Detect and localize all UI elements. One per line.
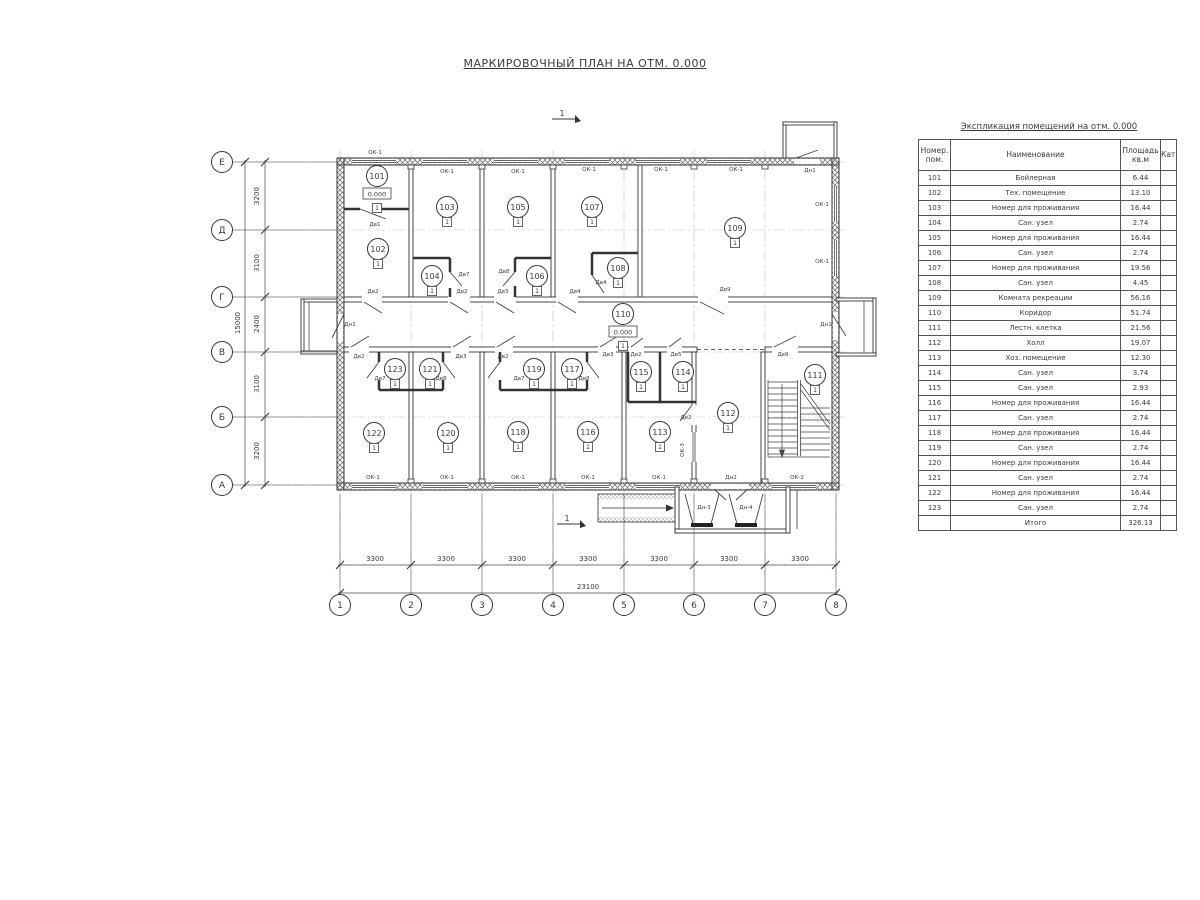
cell-room-number: 121 bbox=[919, 471, 951, 486]
cell-room-name: Коридор bbox=[951, 306, 1121, 321]
cell-room-number: 102 bbox=[919, 186, 951, 201]
table-row: 115Сан. узел2.93 bbox=[919, 381, 1177, 396]
cell-room-name: Номер для проживания bbox=[951, 426, 1121, 441]
svg-text:1: 1 bbox=[445, 219, 449, 226]
cell-room-number: 122 bbox=[919, 486, 951, 501]
window-label-ОК-1: ОК-1 bbox=[654, 167, 668, 173]
window-label-ОК-1: ОК-1 bbox=[366, 475, 380, 481]
room-marker-107: 1071 bbox=[582, 197, 603, 227]
svg-text:1: 1 bbox=[639, 384, 643, 391]
table-row: 117Сан. узел2.74 bbox=[919, 411, 1177, 426]
window-label-ОК-1: ОК-1 bbox=[440, 475, 454, 481]
table-row: 114Сан. узел3.74 bbox=[919, 366, 1177, 381]
svg-text:1: 1 bbox=[564, 514, 569, 523]
room-marker-109: 1091 bbox=[725, 218, 746, 248]
door-label-Дн1: Дн1 bbox=[820, 322, 831, 328]
cell-room-number: 106 bbox=[919, 246, 951, 261]
room-marker-108: 1081 bbox=[608, 258, 629, 288]
table-row: 103Номер для проживания16.44 bbox=[919, 201, 1177, 216]
room-marker-106: 1061 bbox=[527, 266, 548, 296]
svg-text:2400: 2400 bbox=[253, 315, 261, 333]
svg-text:1: 1 bbox=[532, 381, 536, 388]
cell-room-cat bbox=[1161, 486, 1177, 501]
table-header-row: Номер.пом. Наименование Площадькв.м Кат. bbox=[919, 140, 1177, 171]
cell-room-number: 116 bbox=[919, 396, 951, 411]
room-marker-101: 1010.0001 bbox=[363, 166, 391, 213]
cell-room-cat bbox=[1161, 321, 1177, 336]
room-marker-123: 1231 bbox=[385, 359, 406, 389]
cell-room-area: 6.44 bbox=[1121, 171, 1161, 186]
room-marker-120: 1201 bbox=[438, 423, 459, 453]
cell-room-area: 19.07 bbox=[1121, 336, 1161, 351]
cell-room-area: 2.74 bbox=[1121, 216, 1161, 231]
cell-room-cat bbox=[1161, 366, 1177, 381]
svg-text:113: 113 bbox=[652, 428, 667, 437]
cell-room-name: Сан. узел bbox=[951, 216, 1121, 231]
svg-text:103: 103 bbox=[439, 203, 454, 212]
cell-room-cat bbox=[1161, 291, 1177, 306]
svg-text:119: 119 bbox=[526, 365, 541, 374]
cell-room-number: 117 bbox=[919, 411, 951, 426]
room-marker-113: 1131 bbox=[650, 422, 671, 452]
svg-text:1: 1 bbox=[375, 205, 379, 212]
window-label-ОК-1: ОК-1 bbox=[652, 475, 666, 481]
cell-room-name: Номер для проживания bbox=[951, 201, 1121, 216]
svg-text:104: 104 bbox=[424, 272, 439, 281]
door-label-Дн-4: Дн-4 bbox=[739, 505, 753, 511]
svg-text:0.000: 0.000 bbox=[614, 328, 633, 336]
cell-room-name: Сан. узел bbox=[951, 366, 1121, 381]
cell-room-name: Сан. узел bbox=[951, 471, 1121, 486]
table-row: 109Комната рекреации56.16 bbox=[919, 291, 1177, 306]
window-label-ОК-1: ОК-1 bbox=[729, 167, 743, 173]
cell-room-name: Комната рекреации bbox=[951, 291, 1121, 306]
svg-text:5: 5 bbox=[621, 601, 627, 611]
section-marks: 11 bbox=[552, 109, 586, 528]
col-header-number: Номер.пом. bbox=[919, 140, 951, 171]
svg-text:1: 1 bbox=[516, 219, 520, 226]
cell-room-number: 109 bbox=[919, 291, 951, 306]
svg-text:123: 123 bbox=[387, 365, 402, 374]
window-label-ОК-1: ОК-1 bbox=[582, 167, 596, 173]
room-marker-115: 1151 bbox=[631, 362, 652, 392]
cell-room-cat bbox=[1161, 306, 1177, 321]
door-label-Дв3: Дв3 bbox=[455, 354, 467, 360]
cell-room-area: 16.44 bbox=[1121, 426, 1161, 441]
svg-text:1: 1 bbox=[726, 425, 730, 432]
total-value: 326.13 bbox=[1121, 516, 1161, 531]
cell-room-number: 104 bbox=[919, 216, 951, 231]
cell-room-name: Номер для проживания bbox=[951, 486, 1121, 501]
table-row: 118Номер для проживания16.44 bbox=[919, 426, 1177, 441]
cell-room-name: Сан. узел bbox=[951, 381, 1121, 396]
svg-text:3300: 3300 bbox=[366, 555, 384, 563]
room-marker-112: 1121 bbox=[718, 403, 739, 433]
svg-text:1: 1 bbox=[535, 288, 539, 295]
cell-room-number: 112 bbox=[919, 336, 951, 351]
cell-room-name: Сан. узел bbox=[951, 276, 1121, 291]
svg-text:4: 4 bbox=[550, 601, 556, 611]
cell-room-area: 2.74 bbox=[1121, 411, 1161, 426]
cell-room-area: 16.44 bbox=[1121, 231, 1161, 246]
door-label-Дв7: Дв7 bbox=[374, 376, 386, 382]
cell-room-cat bbox=[1161, 171, 1177, 186]
table-row: 123Сан. узел2.74 bbox=[919, 501, 1177, 516]
svg-text:1: 1 bbox=[446, 445, 450, 452]
entrance-thresholds bbox=[691, 523, 757, 527]
svg-text:1: 1 bbox=[813, 387, 817, 394]
cell-room-area: 16.44 bbox=[1121, 201, 1161, 216]
table-row: 104Сан. узел2.74 bbox=[919, 216, 1177, 231]
cell-room-cat bbox=[1161, 426, 1177, 441]
room-marker-121: 1211 bbox=[420, 359, 441, 389]
cell-room-area: 51.74 bbox=[1121, 306, 1161, 321]
table-row: 105Номер для проживания16.44 bbox=[919, 231, 1177, 246]
door-label-Дн1: Дн1 bbox=[344, 322, 355, 328]
staircase bbox=[768, 380, 830, 457]
table-row: 120Номер для проживания16.44 bbox=[919, 456, 1177, 471]
cell-room-number: 110 bbox=[919, 306, 951, 321]
porches bbox=[301, 122, 876, 533]
cell-room-cat bbox=[1161, 501, 1177, 516]
svg-text:1: 1 bbox=[372, 445, 376, 452]
cell-room-cat bbox=[1161, 231, 1177, 246]
axis-bubbles: ЕДГВБА12345678 bbox=[212, 152, 847, 616]
door-label-Дв2: Дв2 bbox=[630, 352, 641, 358]
door-label-Дн-3: Дн-3 bbox=[697, 505, 711, 511]
cell-room-name: Холл bbox=[951, 336, 1121, 351]
cell-room-area: 2.74 bbox=[1121, 441, 1161, 456]
cell-room-number: 118 bbox=[919, 426, 951, 441]
svg-text:0.000: 0.000 bbox=[368, 190, 387, 198]
svg-text:3300: 3300 bbox=[791, 555, 809, 563]
svg-text:1: 1 bbox=[590, 219, 594, 226]
table-row: 111Лестн. клетка21.56 bbox=[919, 321, 1177, 336]
cell-room-name: Сан. узел bbox=[951, 246, 1121, 261]
cell-room-name: Номер для проживания bbox=[951, 396, 1121, 411]
svg-text:1: 1 bbox=[621, 343, 625, 350]
cell-room-area: 2.74 bbox=[1121, 501, 1161, 516]
door-label-Дв3: Дв3 bbox=[497, 289, 509, 295]
table-row: 102Тех. помещение13.10 bbox=[919, 186, 1177, 201]
cell-room-cat bbox=[1161, 456, 1177, 471]
svg-text:122: 122 bbox=[366, 429, 381, 438]
cell-room-name: Номер для проживания bbox=[951, 231, 1121, 246]
table-row: 122Номер для проживания16.44 bbox=[919, 486, 1177, 501]
cell-room-name: Тех. помещение bbox=[951, 186, 1121, 201]
svg-text:118: 118 bbox=[510, 428, 525, 437]
svg-text:1: 1 bbox=[586, 444, 590, 451]
cell-room-name: Сан. узел bbox=[951, 441, 1121, 456]
svg-text:111: 111 bbox=[807, 371, 822, 380]
cell-room-cat bbox=[1161, 201, 1177, 216]
room-marker-117: 1171 bbox=[562, 359, 583, 389]
svg-text:3100: 3100 bbox=[253, 254, 261, 272]
cell-room-cat bbox=[1161, 246, 1177, 261]
table-row: 121Сан. узел2.74 bbox=[919, 471, 1177, 486]
window-label-ОК-1: ОК-1 bbox=[815, 202, 829, 208]
svg-text:105: 105 bbox=[510, 203, 525, 212]
cell-room-cat bbox=[1161, 411, 1177, 426]
svg-text:1: 1 bbox=[681, 384, 685, 391]
cell-room-cat bbox=[1161, 471, 1177, 486]
svg-text:Б: Б bbox=[219, 413, 225, 423]
room-marker-102: 1021 bbox=[368, 239, 389, 269]
explication-title: Экспликация помещений на отм. 0.000 bbox=[918, 122, 1180, 132]
cell-room-cat bbox=[1161, 351, 1177, 366]
window-label-ОК-1: ОК-1 bbox=[815, 259, 829, 265]
cell-room-name: Лестн. клетка bbox=[951, 321, 1121, 336]
svg-text:7: 7 bbox=[762, 601, 768, 611]
svg-text:102: 102 bbox=[370, 245, 385, 254]
cell-empty bbox=[1161, 516, 1177, 531]
cell-room-name: Сан. узел bbox=[951, 501, 1121, 516]
cell-room-cat bbox=[1161, 276, 1177, 291]
svg-text:1: 1 bbox=[430, 288, 434, 295]
svg-text:2: 2 bbox=[408, 601, 414, 611]
window-label-ОК-1: ОК-1 bbox=[511, 475, 525, 481]
cell-room-name: Бойлерная bbox=[951, 171, 1121, 186]
svg-text:3100: 3100 bbox=[253, 375, 261, 393]
svg-text:3300: 3300 bbox=[650, 555, 668, 563]
room-marker-119: 1191 bbox=[524, 359, 545, 389]
cell-room-area: 56.16 bbox=[1121, 291, 1161, 306]
ramp bbox=[598, 494, 675, 522]
svg-text:Д: Д bbox=[218, 226, 225, 236]
door-label-Дв2: Дв2 bbox=[456, 289, 467, 295]
cell-empty bbox=[919, 516, 951, 531]
cell-room-area: 12.30 bbox=[1121, 351, 1161, 366]
door-label-Дв2: Дв2 bbox=[367, 289, 378, 295]
cell-room-number: 103 bbox=[919, 201, 951, 216]
table-row: 110Коридор51.74 bbox=[919, 306, 1177, 321]
cell-room-name: Сан. узел bbox=[951, 411, 1121, 426]
cell-room-area: 16.44 bbox=[1121, 456, 1161, 471]
window-label-ОК-1: ОК-1 bbox=[511, 169, 525, 175]
svg-text:Е: Е bbox=[219, 158, 225, 168]
room-marker-122: 1221 bbox=[364, 423, 385, 453]
window-label-ОК-3: ОК-3 bbox=[680, 443, 686, 457]
door-label-Дн2: Дн2 bbox=[725, 475, 736, 481]
room-marker-103: 1031 bbox=[437, 197, 458, 227]
svg-text:106: 106 bbox=[529, 272, 544, 281]
cell-room-name: Номер для проживания bbox=[951, 261, 1121, 276]
door-label-Дв8: Дв8 bbox=[578, 376, 590, 382]
cell-room-number: 107 bbox=[919, 261, 951, 276]
cell-room-cat bbox=[1161, 261, 1177, 276]
svg-text:121: 121 bbox=[422, 365, 437, 374]
door-label-Дв2: Дв2 bbox=[497, 354, 508, 360]
cell-room-cat bbox=[1161, 216, 1177, 231]
window-label-ОК-2: ОК-2 bbox=[790, 475, 804, 481]
svg-text:1: 1 bbox=[733, 240, 737, 247]
cell-room-area: 16.44 bbox=[1121, 486, 1161, 501]
window-label-ОК-1: ОК-1 bbox=[581, 475, 595, 481]
door-label-Дв9: Дв9 bbox=[719, 287, 731, 293]
svg-text:1: 1 bbox=[428, 381, 432, 388]
cell-room-number: 111 bbox=[919, 321, 951, 336]
cell-room-area: 19.56 bbox=[1121, 261, 1161, 276]
svg-text:3300: 3300 bbox=[437, 555, 455, 563]
table-row: 112Холл19.07 bbox=[919, 336, 1177, 351]
svg-text:3200: 3200 bbox=[253, 187, 261, 205]
cell-room-cat bbox=[1161, 336, 1177, 351]
cell-room-area: 13.10 bbox=[1121, 186, 1161, 201]
svg-text:116: 116 bbox=[580, 428, 595, 437]
svg-text:101: 101 bbox=[369, 172, 384, 181]
svg-text:120: 120 bbox=[440, 429, 455, 438]
cell-room-cat bbox=[1161, 441, 1177, 456]
door-label-Дв4: Дв4 bbox=[595, 280, 607, 286]
col-header-cat: Кат. bbox=[1161, 140, 1177, 171]
door-label-Дв3: Дв3 bbox=[602, 352, 614, 358]
total-label: Итого bbox=[951, 516, 1121, 531]
cell-room-area: 16.44 bbox=[1121, 396, 1161, 411]
room-marker-111: 1111 bbox=[805, 365, 826, 395]
svg-text:1: 1 bbox=[516, 444, 520, 451]
svg-text:1: 1 bbox=[393, 381, 397, 388]
window-label-ОК-1: ОК-1 bbox=[368, 150, 382, 156]
cell-room-number: 119 bbox=[919, 441, 951, 456]
cell-room-area: 4.45 bbox=[1121, 276, 1161, 291]
cell-room-area: 2.93 bbox=[1121, 381, 1161, 396]
cell-room-area: 21.56 bbox=[1121, 321, 1161, 336]
door-label-Дв5: Дв5 bbox=[670, 352, 682, 358]
door-label-Дв4: Дв4 bbox=[569, 289, 581, 295]
explication-table: Экспликация помещений на отм. 0.000 Номе… bbox=[918, 122, 1180, 531]
table-row: 107Номер для проживания19.56 bbox=[919, 261, 1177, 276]
room-marker-110: 1100.0001 bbox=[609, 304, 637, 351]
cell-room-area: 3.74 bbox=[1121, 366, 1161, 381]
svg-text:А: А bbox=[219, 481, 226, 491]
cell-room-number: 123 bbox=[919, 501, 951, 516]
table-row: 113Хоз. помещение12.30 bbox=[919, 351, 1177, 366]
svg-text:1: 1 bbox=[559, 109, 564, 118]
cell-room-number: 101 bbox=[919, 171, 951, 186]
svg-text:В: В bbox=[219, 348, 225, 358]
door-label-Дв9: Дв9 bbox=[777, 352, 789, 358]
svg-text:112: 112 bbox=[720, 409, 735, 418]
svg-text:3200: 3200 bbox=[253, 442, 261, 460]
cell-room-name: Хоз. помещение bbox=[951, 351, 1121, 366]
svg-text:109: 109 bbox=[727, 224, 742, 233]
svg-text:1: 1 bbox=[658, 444, 662, 451]
svg-text:Г: Г bbox=[219, 293, 225, 303]
col-header-area: Площадькв.м bbox=[1121, 140, 1161, 171]
cell-room-cat bbox=[1161, 396, 1177, 411]
drawing-sheet: МАРКИРОВОЧНЫЙ ПЛАН НА ОТМ. 0.000 bbox=[0, 0, 1200, 900]
room-marker-114: 1141 bbox=[673, 362, 694, 392]
room-marker-105: 1051 bbox=[508, 197, 529, 227]
door-label-Дв8: Дв8 bbox=[498, 269, 510, 275]
svg-text:8: 8 bbox=[833, 601, 839, 611]
table-row: 106Сан. узел2.74 bbox=[919, 246, 1177, 261]
room-marker-104: 1041 bbox=[422, 266, 443, 296]
window-label-ОК-1: ОК-1 bbox=[440, 169, 454, 175]
cell-room-number: 120 bbox=[919, 456, 951, 471]
room-marker-116: 1161 bbox=[578, 422, 599, 452]
door-label-Дн1: Дн1 bbox=[804, 168, 815, 174]
svg-text:3300: 3300 bbox=[508, 555, 526, 563]
cell-room-number: 108 bbox=[919, 276, 951, 291]
cell-room-area: 2.74 bbox=[1121, 471, 1161, 486]
door-label-Дв1: Дв1 bbox=[369, 222, 380, 228]
cell-room-number: 115 bbox=[919, 381, 951, 396]
cell-room-area: 2.74 bbox=[1121, 246, 1161, 261]
svg-text:6: 6 bbox=[691, 601, 697, 611]
svg-text:114: 114 bbox=[675, 368, 690, 377]
svg-text:3300: 3300 bbox=[579, 555, 597, 563]
svg-text:115: 115 bbox=[633, 368, 648, 377]
svg-text:117: 117 bbox=[564, 365, 579, 374]
svg-text:1: 1 bbox=[570, 381, 574, 388]
door-label-Дв8: Дв8 bbox=[435, 376, 447, 382]
table-row: 108Сан. узел4.45 bbox=[919, 276, 1177, 291]
svg-text:3: 3 bbox=[479, 601, 485, 611]
room-marker-118: 1181 bbox=[508, 422, 529, 452]
table-row: 116Номер для проживания16.44 bbox=[919, 396, 1177, 411]
cell-room-number: 105 bbox=[919, 231, 951, 246]
cell-room-cat bbox=[1161, 381, 1177, 396]
svg-text:1: 1 bbox=[376, 261, 380, 268]
svg-text:15000: 15000 bbox=[234, 312, 242, 334]
col-header-name: Наименование bbox=[951, 140, 1121, 171]
door-label-Дв2: Дв2 bbox=[680, 415, 691, 421]
svg-text:107: 107 bbox=[584, 203, 599, 212]
table-row: 101Бойлерная6.44 bbox=[919, 171, 1177, 186]
svg-text:108: 108 bbox=[610, 264, 625, 273]
cell-room-cat bbox=[1161, 186, 1177, 201]
svg-text:110: 110 bbox=[615, 310, 630, 319]
svg-text:1: 1 bbox=[616, 280, 620, 287]
cell-room-name: Номер для проживания bbox=[951, 456, 1121, 471]
room-markers: 1010.00011021103110411051106110711081109… bbox=[363, 166, 826, 453]
svg-text:23100: 23100 bbox=[577, 583, 599, 591]
svg-text:1: 1 bbox=[337, 601, 343, 611]
table-total-row: Итого326.13 bbox=[919, 516, 1177, 531]
table-row: 119Сан. узел2.74 bbox=[919, 441, 1177, 456]
door-label-Дв7: Дв7 bbox=[513, 376, 525, 382]
svg-text:3300: 3300 bbox=[720, 555, 738, 563]
door-label-Дв2: Дв2 bbox=[353, 354, 364, 360]
cell-room-number: 113 bbox=[919, 351, 951, 366]
door-label-Дв7: Дв7 bbox=[458, 272, 470, 278]
cell-room-number: 114 bbox=[919, 366, 951, 381]
